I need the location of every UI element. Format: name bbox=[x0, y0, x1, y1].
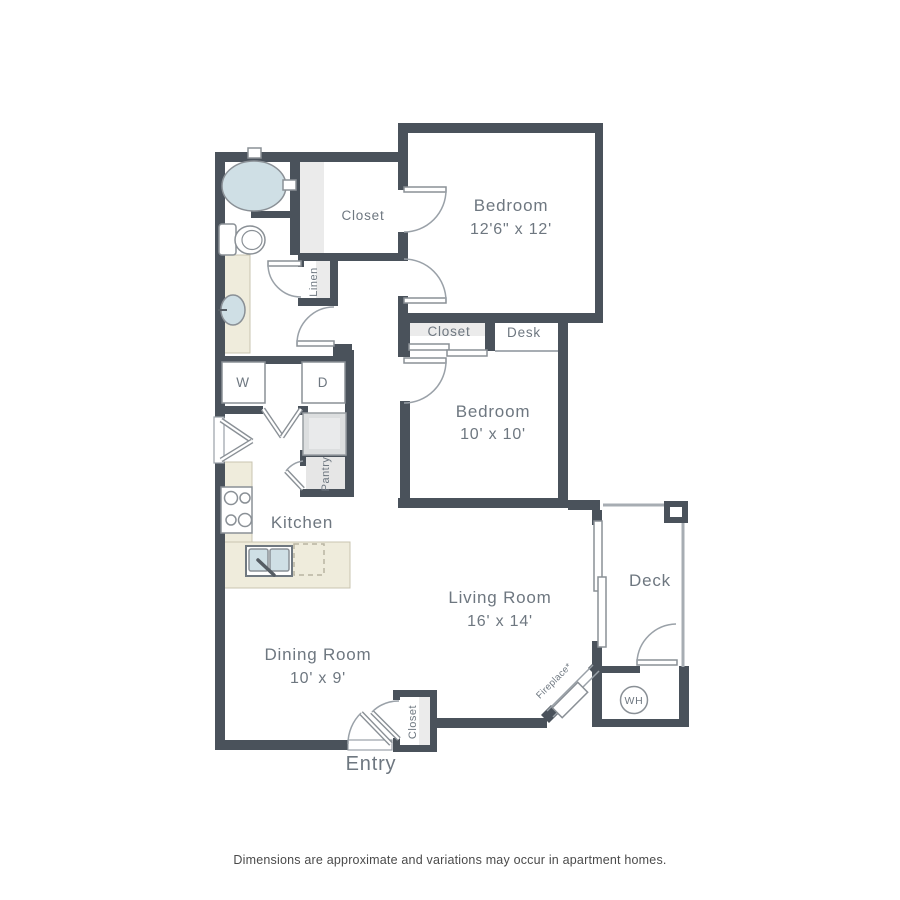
living-room-label: Living Room bbox=[448, 588, 551, 607]
bedroom1-dims: 12'6" x 12' bbox=[470, 221, 552, 238]
wall-closet-strip-west-jamb bbox=[398, 323, 410, 357]
burner-3 bbox=[226, 515, 236, 525]
doors bbox=[214, 187, 677, 750]
dryer-label: D bbox=[318, 375, 329, 390]
hall-door-arc bbox=[297, 307, 334, 344]
bedroom1-door-arc bbox=[404, 259, 446, 301]
wall-closet-desk-divider bbox=[485, 323, 495, 351]
closet-slider-2 bbox=[447, 350, 487, 356]
entry-door bbox=[348, 713, 391, 744]
floor-plan-drawing: Bedroom 12'6" x 12' Bedroom 10' x 10' Li… bbox=[0, 0, 900, 900]
tub-fixture-notch bbox=[248, 148, 261, 158]
desk-label: Desk bbox=[507, 325, 541, 340]
wall-wh-east bbox=[679, 666, 689, 727]
wall-south-living bbox=[437, 718, 547, 728]
wall-linen-south bbox=[298, 298, 338, 306]
wall-bedroom2-south bbox=[398, 498, 568, 508]
wh-door-arc bbox=[637, 624, 676, 662]
entry-label: Entry bbox=[346, 753, 397, 775]
refrigerator-highlight bbox=[309, 418, 340, 449]
wall-bath-closet-divider bbox=[290, 152, 300, 255]
patio-slider-panel-2 bbox=[598, 577, 606, 647]
walkin-closet-door-leaf bbox=[404, 187, 446, 192]
deck-post bbox=[667, 504, 685, 520]
wall-bedroom1-west-a bbox=[398, 123, 408, 190]
washer-label: W bbox=[236, 375, 250, 390]
linen-label: Linen bbox=[308, 267, 320, 296]
burner-2 bbox=[240, 493, 250, 503]
wall-living-northeast bbox=[568, 500, 600, 510]
wall-bedroom2-east bbox=[558, 323, 568, 503]
toilet-tank bbox=[219, 224, 236, 255]
tub-faucet bbox=[283, 180, 296, 190]
wall-bedroom1-north bbox=[398, 123, 603, 133]
entry-closet-door bbox=[372, 701, 399, 739]
wall-south-west bbox=[215, 740, 348, 750]
wall-wh-south bbox=[592, 719, 689, 727]
wall-tub-alcove bbox=[251, 211, 300, 218]
entry-closet-shelf bbox=[419, 697, 430, 745]
bedroom2-closet-label: Closet bbox=[427, 324, 470, 339]
bathroom-fixtures bbox=[218, 148, 296, 325]
west-double-doors bbox=[221, 420, 252, 460]
bedroom1-label: Bedroom bbox=[474, 196, 549, 215]
wall-entry-closet-east bbox=[430, 690, 437, 752]
deck-label: Deck bbox=[629, 571, 671, 590]
bedroom2-label: Bedroom bbox=[456, 402, 531, 421]
walkin-closet-label: Closet bbox=[341, 208, 384, 223]
wall-wh-north bbox=[602, 666, 640, 673]
wall-bedroom1-south bbox=[398, 313, 603, 323]
wall-bedroom2-west bbox=[400, 401, 410, 498]
burner-1 bbox=[225, 492, 238, 505]
footer-disclaimer: Dimensions are approximate and variation… bbox=[233, 853, 666, 867]
bedroom2-door-leaf bbox=[404, 358, 446, 363]
bedroom2-dims: 10' x 10' bbox=[460, 426, 526, 443]
kitchen-label: Kitchen bbox=[271, 513, 333, 532]
bathtub bbox=[222, 161, 286, 211]
hall-door-leaf bbox=[297, 341, 334, 346]
wall-slider-stub-wh-west bbox=[592, 641, 602, 727]
linen-door-leaf bbox=[268, 261, 301, 266]
sink-basin-right bbox=[270, 549, 289, 571]
bedroom2-door-arc bbox=[404, 361, 446, 403]
wh-door-leaf bbox=[637, 660, 677, 665]
wall-entry-closet-west-a bbox=[393, 690, 400, 700]
wall-bedroom1-east bbox=[595, 123, 603, 323]
linen-door-arc bbox=[268, 264, 301, 297]
walkin-closet-shelf bbox=[300, 162, 324, 253]
closet-slider-1 bbox=[409, 344, 449, 350]
wall-walkin-south bbox=[303, 253, 408, 261]
wall-entry-closet-south bbox=[393, 745, 437, 752]
laundry-bifold-doors bbox=[263, 409, 301, 437]
wall-north-bath bbox=[215, 152, 407, 162]
pantry-label: Pantry bbox=[320, 457, 332, 492]
dining-room-label: Dining Room bbox=[264, 645, 371, 664]
floor-plan-page: Bedroom 12'6" x 12' Bedroom 10' x 10' Li… bbox=[0, 0, 900, 900]
walkin-closet-door-arc bbox=[404, 190, 446, 232]
living-room-dims: 16' x 14' bbox=[467, 613, 533, 630]
dining-room-dims: 10' x 9' bbox=[290, 670, 346, 687]
wall-under-washer bbox=[215, 406, 263, 414]
bedroom1-door-leaf bbox=[404, 298, 446, 303]
entry-closet-label: Closet bbox=[407, 705, 419, 739]
water-heater-label: WH bbox=[624, 695, 643, 707]
burner-4 bbox=[239, 514, 252, 527]
